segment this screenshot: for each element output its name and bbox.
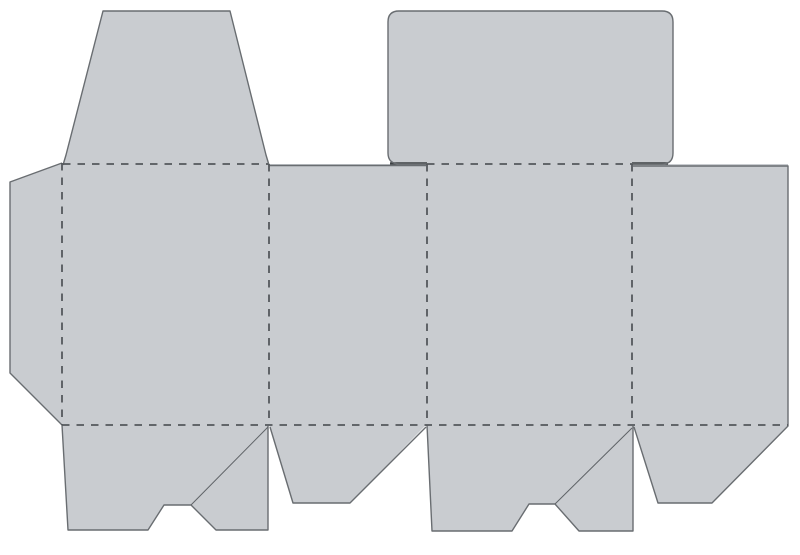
lock-flap-3-fill (427, 425, 633, 531)
dieline-svg (0, 0, 800, 555)
tuck-lid-flap-fill (63, 11, 269, 165)
dieline-canvas (0, 0, 800, 555)
dust-flap-2-fill (269, 425, 426, 503)
dust-flap-4-fill (633, 425, 788, 503)
glue-flap-fill (10, 163, 62, 425)
lock-flap-1-fill (62, 425, 268, 530)
rounded-lid-flap-fill (388, 11, 673, 164)
main-band-fill (62, 164, 788, 426)
